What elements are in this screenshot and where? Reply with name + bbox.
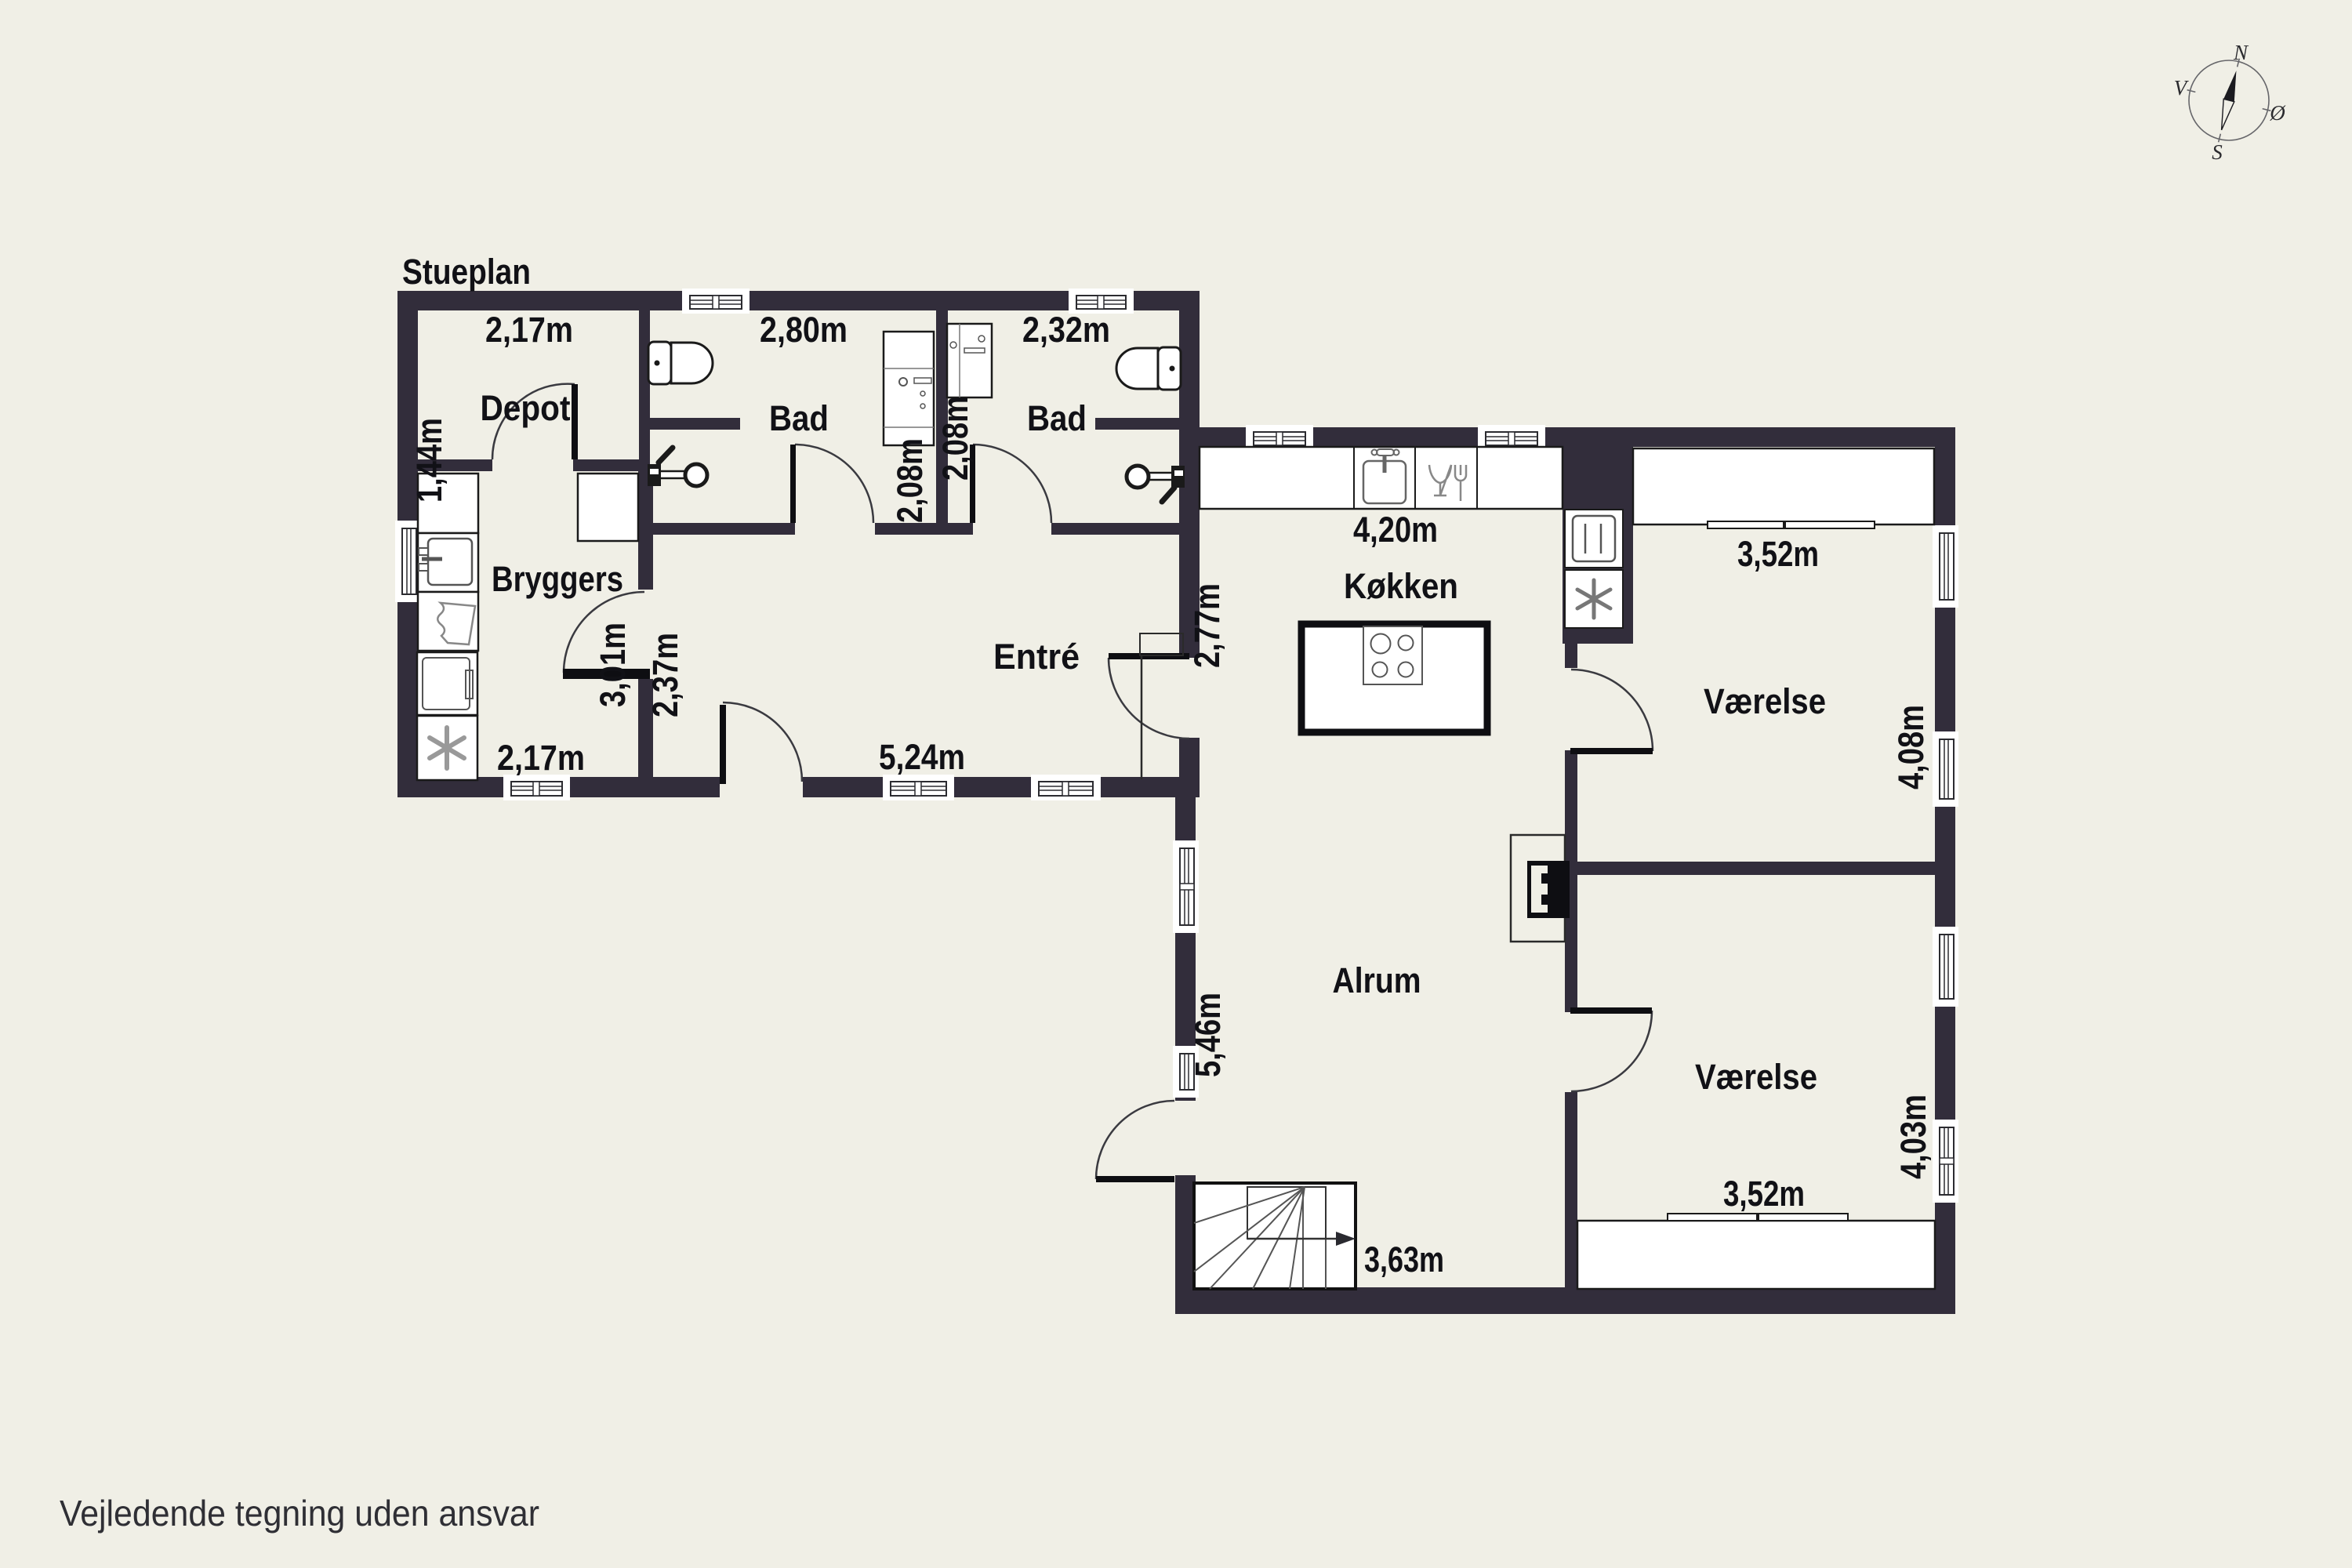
svg-text:2,37m: 2,37m bbox=[645, 633, 685, 717]
svg-text:2,08m: 2,08m bbox=[935, 396, 975, 481]
svg-text:Vejledende tegning uden ansvar: Vejledende tegning uden ansvar bbox=[60, 1493, 539, 1534]
svg-text:Køkken: Køkken bbox=[1344, 566, 1458, 606]
svg-text:3,63m: 3,63m bbox=[1364, 1240, 1444, 1279]
svg-text:Stueplan: Stueplan bbox=[402, 252, 531, 292]
svg-text:2,17m: 2,17m bbox=[497, 738, 585, 778]
svg-text:2,08m: 2,08m bbox=[890, 438, 930, 523]
svg-text:Entré: Entré bbox=[993, 637, 1080, 677]
svg-text:Depot: Depot bbox=[481, 388, 571, 428]
svg-text:2,77m: 2,77m bbox=[1187, 583, 1227, 668]
svg-text:1,44m: 1,44m bbox=[409, 418, 449, 503]
svg-text:5,46m: 5,46m bbox=[1188, 993, 1228, 1077]
svg-text:2,17m: 2,17m bbox=[485, 310, 573, 350]
svg-text:Ø: Ø bbox=[2269, 101, 2286, 125]
svg-text:Bad: Bad bbox=[1027, 398, 1087, 438]
svg-text:S: S bbox=[2212, 140, 2223, 164]
svg-text:3,01m: 3,01m bbox=[593, 622, 633, 707]
svg-text:2,32m: 2,32m bbox=[1022, 310, 1110, 350]
svg-text:Værelse: Værelse bbox=[1695, 1057, 1817, 1097]
svg-text:4,20m: 4,20m bbox=[1353, 510, 1438, 550]
svg-text:Bad: Bad bbox=[769, 398, 829, 438]
svg-text:Alrum: Alrum bbox=[1333, 960, 1421, 1000]
svg-text:Bryggers: Bryggers bbox=[492, 559, 623, 599]
svg-text:3,52m: 3,52m bbox=[1723, 1174, 1805, 1214]
svg-text:5,24m: 5,24m bbox=[879, 737, 965, 777]
svg-text:Værelse: Værelse bbox=[1704, 681, 1826, 721]
svg-text:2,80m: 2,80m bbox=[760, 310, 848, 350]
svg-text:N: N bbox=[2233, 41, 2249, 64]
svg-text:4,08m: 4,08m bbox=[1891, 705, 1931, 789]
svg-text:4,03m: 4,03m bbox=[1893, 1094, 1933, 1179]
svg-text:3,52m: 3,52m bbox=[1737, 534, 1819, 574]
